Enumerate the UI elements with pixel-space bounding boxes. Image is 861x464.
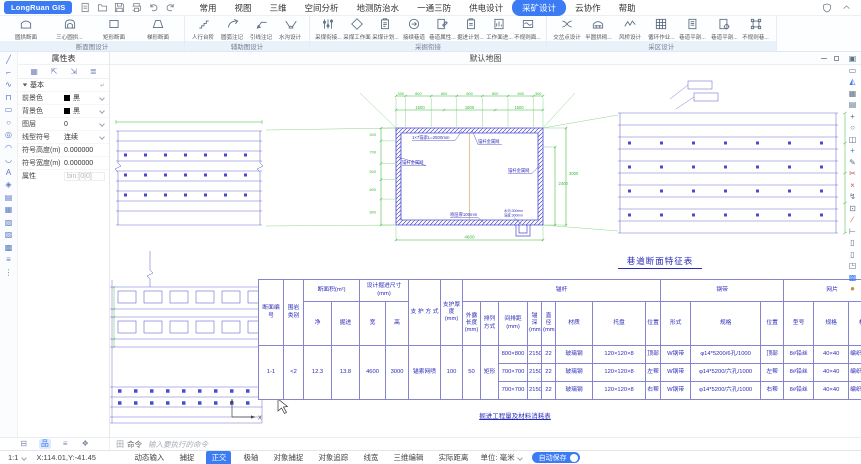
polar-toggle[interactable]: 极轴 [240,451,261,464]
rectangle-tool-icon[interactable]: ▭ [2,104,15,115]
command-label-group: 田 命令 [116,439,142,450]
table-cell: 编织金属网 [849,364,861,382]
chevron-down-icon [517,455,523,461]
multiline-tool-icon[interactable]: ⊓ [2,92,15,103]
xref-tool-icon[interactable]: ▧ [2,217,15,228]
table-row: 1-1 <2 12.3 13.8 4600 3000 锚索网喷 100 50 矩… [259,346,861,364]
roadway-connect-button[interactable]: 接续巷道 [400,17,429,41]
table-cell: 22 [542,346,556,364]
table-cell: 40×40 [814,346,849,364]
svg-text:300: 300 [398,91,405,96]
lineweight-toggle[interactable]: 线宽 [360,451,381,464]
workface-progress-button[interactable]: 工作面进... [485,17,514,41]
menu-item-bangzhu[interactable]: 帮助 [610,0,645,16]
table-cell: 700×700 [499,364,528,382]
dig-plan-button[interactable]: 掘进计划... [457,17,486,41]
clipboard-icon[interactable]: ▯ [850,238,854,249]
chevron-down-icon[interactable] [99,95,105,101]
table-header: 形式 [661,302,691,346]
pencil-icon[interactable]: ✎ [849,158,856,169]
layers-tab-icon[interactable]: ≣ [90,67,97,76]
undo-icon[interactable] [148,2,159,13]
table-header: 锚杆 [463,280,661,302]
svg-text:锚杆金属网: 锚杆金属网 [402,159,423,166]
real-distance-toggle[interactable]: 实际距离 [435,451,471,464]
top-menu-bar: LongRuan GIS 常用 视图 三维 空间分析 地测防治水 一通三防 供电… [0,0,861,16]
view-cube-icon[interactable]: ◳ [849,261,857,272]
table-header: 断面编号 [259,280,284,346]
svg-text:400: 400 [370,132,377,137]
svg-text:3000: 3000 [569,171,579,176]
table-cell: 120×120×8 [593,382,646,400]
menu-item-shitu[interactable]: 视图 [226,0,261,16]
topbar-right [822,3,851,13]
print-icon[interactable] [131,2,142,13]
panel-bottom-tabs: ⊟ 品 ≡ ❖ [0,438,110,450]
svg-text:1500: 1500 [415,105,425,110]
zoom-scale-dropdown[interactable]: 1:1 [8,453,27,462]
rect-section-button[interactable]: 矩形断面 [92,17,136,41]
toggle-knob [570,454,578,462]
svg-text:800: 800 [492,91,499,96]
shield-icon[interactable] [822,3,832,13]
table-cell: 玻璃钢 [556,364,593,382]
table-header: 设计掘进尺寸(mm) [360,280,409,302]
mirror-icon[interactable]: ◭ [849,77,855,88]
prop-row-foreground-color[interactable]: 前景色 黑 [18,91,109,104]
svg-text:锚杆金属网: 锚杆金属网 [508,167,529,174]
prop-row-background-color[interactable]: 背景色 黑 [18,104,109,117]
table-header: 锚深(mm) [528,302,542,346]
roadway-profile2-button[interactable]: 巷道平剖... [709,17,741,41]
table-cell: 12.3 [304,346,332,400]
ribbon-group-panel-design: 交岔点设计 半圆拱砌... 风桥设计 循环作业... 巷道平剖... 巷道平剖.… [547,16,777,51]
table-cell: φ14*5200/6孔/1000 [691,346,761,364]
half-arch-button[interactable]: 半圆拱砌... [583,17,615,41]
irregular-roadway-button[interactable]: 不规则巷... [740,17,772,41]
cut-icon[interactable]: ✂ [849,169,856,180]
table-cell: 13.8 [332,346,360,400]
table-header: 托盘 [593,302,646,346]
svg-text:800: 800 [415,91,422,96]
property-panel: 属性表 ▦ ⇱ ⇲ ≣ 基本 ↵ 前景色 黑 背景色 黑 图层 0 线型符号 连… [18,52,110,437]
app-logo[interactable]: LongRuan GIS [4,1,72,14]
air-bridge-button[interactable]: 风桥设计 [614,17,646,41]
table-cell: 左帮 [646,364,661,382]
copy-icon[interactable]: ▣ [849,54,857,65]
prop-row-layer[interactable]: 图层 0 [18,117,109,130]
prop-row-symbol-height[interactable]: 符号高度(m) 0.000000 [18,143,109,156]
roadway-profile-button[interactable]: 巷道平剖... [677,17,709,41]
minimize-icon[interactable] [821,58,827,59]
property-panel-tabs: ▦ ⇱ ⇲ ≣ [18,65,109,79]
prop-row-linetype[interactable]: 线型符号 连续 [18,130,109,143]
prop-row-symbol-width[interactable]: 符号宽度(m) 0.000000 [18,156,109,169]
coal-connect-button[interactable]: 采煤衔接... [314,17,343,41]
table-cell: 1-1 [259,346,284,400]
ribbon-group-label: 采区设计 [547,41,776,51]
table-header: 外露长度(mm) [463,302,481,346]
table-header: 位置 [646,302,661,346]
table-header: 位置 [761,302,784,346]
open-file-icon[interactable] [97,2,108,13]
ribbon-group-label: 断面图设计 [0,41,184,51]
table-cell: 40×40 [814,364,849,382]
sphere-icon[interactable]: ● [850,284,855,295]
duplicate-icon[interactable]: ◫ [849,135,857,146]
collapse-triangle-icon [22,82,28,88]
edit-toolbar: ▣ ▭ ◭ ▦ ▤ + ○ ◫ + ✎ ✂ × ↯ ⊡ ∕ ⊢ ▯ ▯ ◳ ▩ … [845,54,860,295]
roadway-feature-table: 断面编号 围岩类别 断面积(m²) 设计掘进尺寸(mm) 支 护 方 式 支护厚… [258,279,861,400]
command-icon: 田 [116,439,124,450]
table-cell: 8#铅丝 [784,346,814,364]
coal-plan-button[interactable]: 采煤计划... [371,17,400,41]
menu-item-sanwei[interactable]: 三维 [261,0,296,16]
unit-dropdown[interactable]: 单位: 毫米 [480,452,522,463]
chevron-down-icon[interactable] [99,121,105,127]
table-header: 直径(mm) [542,302,556,346]
irregular-face-button[interactable]: 不规则面... [514,17,543,41]
ribbon-group-label: 辅助图设计 [185,41,309,51]
table-cell: 120×120×8 [593,346,646,364]
status-bar: 1:1 X:114.01,Y:-41.45 动态输入 捕捉 正交 极轴 对象捕捉… [0,450,861,464]
ditch-design-button[interactable]: 水沟设计 [276,17,305,41]
polyline-tool-icon[interactable]: ⌐ [2,67,15,78]
ribbon-group-label: 采掘衔接 [310,41,546,51]
svg-text:锚杆金属网: 锚杆金属网 [478,138,499,145]
svg-text:300: 300 [535,91,542,96]
table-header: 排列方式 [481,302,499,346]
clipboard-paste-icon[interactable]: ▯ [850,250,854,261]
canvas-tab-title[interactable]: 默认地图 [470,53,502,64]
chevron-down-icon[interactable] [99,134,105,140]
arch-section-button[interactable]: 圆拱断面 [4,17,48,41]
circle-center-tool-icon[interactable]: ◎ [2,129,15,140]
ribbon-group-section-design: 圆拱断面 三心圆拱... 矩形断面 梯形断面 断面图设计 [0,16,185,51]
object-snap-toggle[interactable]: 对象捕捉 [270,451,306,464]
table-cell: 右帮 [646,382,661,400]
menu-item-yitongsanfang[interactable]: 一通三防 [408,0,460,16]
more-tools-icon[interactable]: ⋮ [2,267,15,278]
table-cell: 顶部 [761,346,784,364]
quick-access-toolbar [80,2,176,13]
redo-icon[interactable] [165,2,176,13]
delete-icon[interactable]: ▭ [849,66,857,77]
color-swatch [64,108,70,114]
trim-icon[interactable]: ∕ [852,215,853,226]
array-icon[interactable]: ▦ [849,89,857,100]
pick-tab-icon[interactable]: ⇲ [70,67,77,76]
svg-text:800: 800 [518,91,525,96]
table-cell: 编织金属网 [849,346,861,364]
save-icon[interactable] [114,2,125,13]
table-header: 材质 [556,302,593,346]
table-header: 断面积(m²) [304,280,360,302]
table-header: 材质 [849,302,861,346]
table-cell: φ14*5200/六孔/1000 [691,382,761,400]
styles-tab-icon[interactable]: ❖ [80,439,91,449]
svg-text:1×7锚索L=2500mm: 1×7锚索L=2500mm [412,134,450,141]
table-header: 间排距(mm) [499,302,528,346]
maximize-icon[interactable] [834,56,839,61]
3d-edit-toggle[interactable]: 三维编辑 [390,451,426,464]
list-tab-icon[interactable]: ⊟ [18,439,29,449]
table-cell: W钢带 [661,346,691,364]
table-header: 规格 [814,302,849,346]
svg-text:4600: 4600 [464,235,475,240]
table-cell: <2 [284,346,304,400]
feature-table-caption: 掘进工程量及材料消耗表 [455,410,575,420]
junction-design-button[interactable]: 交岔点设计 [551,17,583,41]
pin-icon[interactable]: ↵ [100,82,105,89]
svg-text:深度:300mm: 深度:300mm [504,213,523,218]
three-center-arch-button[interactable]: 三心圆拱... [48,17,92,41]
table-cell: 3000 [386,346,409,400]
table-cell: 编织金属网 [849,382,861,400]
stretch-icon[interactable]: ↯ [849,192,856,203]
ribbon-group-aux-design: 人行台阶 圆弧注记 引线注记 水沟设计 辅助图设计 [185,16,310,51]
table-header: 支 护 方 式 [409,280,441,346]
support-layout-plan [110,251,262,423]
ellipse-tool-icon[interactable]: ◡ [2,154,15,165]
marquee-icon[interactable]: ⊡ [849,204,856,215]
property-panel-title: 属性表 [18,52,109,65]
align-tool-icon[interactable]: ≡ [2,254,15,265]
snap-toggle[interactable]: 捕捉 [176,451,197,464]
svg-text:800: 800 [466,91,473,96]
table-cell: 22 [542,364,556,382]
leader-annotation-button[interactable]: 引线注记 [247,17,276,41]
arc-tool-icon[interactable]: ◠ [2,142,15,153]
table-header: 围岩类别 [284,280,304,346]
table-cell: 玻璃钢 [556,382,593,400]
hatch-tool-icon[interactable]: ◈ [2,179,15,190]
feature-table-title: 巷道断面特征表 [618,255,702,269]
svg-text:600: 600 [370,187,377,192]
table-cell: 玻璃钢 [556,346,593,364]
menu-item-kongjianfenxi[interactable]: 空间分析 [296,0,348,16]
walk-steps-button[interactable]: 人行台阶 [189,17,218,41]
dynamic-input-toggle[interactable]: 动态输入 [131,451,167,464]
draw-toolbar: ╱ ⌐ ∿ ⊓ ▭ ○ ◎ ◠ ◡ A ◈ ▤ ▦ ▧ ▨ ▩ ≡ ⋮ [0,52,18,437]
table-cell: 右帮 [761,382,784,400]
projection-lines [266,93,618,231]
table-cell: 22 [542,382,556,400]
plan-view-left [115,120,263,225]
chevron-down-icon[interactable] [99,108,105,114]
svg-text:水沟:300mm: 水沟:300mm [504,208,523,213]
table-cell: 锚索网喷 [409,346,441,400]
move-icon[interactable]: + [850,112,855,123]
table-cell: 700×700 [499,382,528,400]
table-header: 型号 [784,302,814,346]
pattern-icon[interactable]: ▩ [849,273,857,284]
section-basic[interactable]: 基本 ↵ [18,79,109,91]
print-area-icon[interactable]: ▤ [849,100,857,111]
svg-text:500: 500 [370,169,377,174]
autosave-toggle[interactable]: 自动保存 [532,452,580,463]
layer-list-tab-icon[interactable]: ≡ [61,439,70,449]
text-tool-icon[interactable]: A [2,167,15,178]
table-header: 净 [304,302,332,346]
table-cell: 50 [463,346,481,400]
svg-text:800: 800 [441,91,448,96]
svg-text:1600: 1600 [465,105,475,110]
canvas-tab-bar: 默认地图 [110,52,861,65]
table-cell: φ14*5200/六孔/1000 [691,364,761,382]
svg-text:X: X [258,416,262,422]
table-cell: 4600 [360,346,386,400]
table-cell: 2150 [528,382,542,400]
new-file-icon[interactable] [80,2,91,13]
table-cell: 2150 [528,346,542,364]
menu-item-gongdiansheji[interactable]: 供电设计 [460,0,512,16]
map-canvas[interactable]: 默认地图 ▣ ▭ ◭ ▦ ▤ + ○ ◫ + ✎ ✂ × ↯ ⊡ ∕ ⊢ ▯ ▯… [110,52,861,437]
collapse-ribbon-icon[interactable] [842,3,851,12]
table-cell: W钢带 [661,382,691,400]
chevron-down-icon [22,455,28,461]
leader-box [694,93,718,101]
block-tool-icon[interactable]: ▦ [2,204,15,215]
svg-text:800: 800 [370,210,377,215]
menu-item-caikuangsheji[interactable]: 采矿设计 [512,0,566,16]
table-cell: 40×40 [814,382,849,400]
table-header: 支护厚度(mm) [441,280,463,346]
table-header: 掘进 [332,302,360,346]
add-icon[interactable]: + [850,146,855,157]
region-tool-icon[interactable]: ▨ [2,229,15,240]
menu-item-yunxiezuo[interactable]: 云协作 [566,0,610,16]
map-tool-icon[interactable]: ▩ [2,242,15,253]
ribbon-group-mining-connection: 采煤衔接... 采煤工作面 采煤计划... 接续巷道 巷道属性... 掘进计划.… [310,16,547,51]
prop-row-attribute[interactable]: 属性 bin:[0|0] [18,169,109,182]
properties-tab-icon[interactable]: ▦ [30,67,38,76]
table-cell: W钢带 [661,364,691,382]
extend-icon[interactable]: ⊢ [849,227,856,238]
cursor-arrow [278,399,288,414]
cursor-coordinates: X:114.01,Y:-41.45 [36,453,122,462]
table-header: 钢带 [661,280,784,302]
image-tool-icon[interactable]: ▤ [2,192,15,203]
table-cell: 800×800 [499,346,528,364]
table-cell: 8#铅丝 [784,364,814,382]
object-track-toggle[interactable]: 对象追踪 [315,451,351,464]
command-input[interactable] [148,440,861,449]
cycle-work-button[interactable]: 循环作业... [646,17,678,41]
arc-annotation-button[interactable]: 圆弧注记 [218,17,247,41]
spline-tool-icon[interactable]: ∿ [2,79,15,90]
table-cell: 100 [441,346,463,400]
table-cell: 左帮 [761,364,784,382]
svg-text:700: 700 [370,150,377,155]
svg-text:喷层厚100mm: 喷层厚100mm [450,211,478,218]
table-header: 宽 [360,302,386,346]
line-tool-icon[interactable]: ╱ [2,54,15,65]
water-ditch [516,225,530,236]
color-swatch [64,95,70,101]
plan-view-right [618,81,847,234]
circle-tool-icon[interactable]: ○ [2,117,15,128]
trapezoid-section-button[interactable]: 梯形断面 [136,17,180,41]
ortho-toggle[interactable]: 正交 [206,451,231,464]
table-header: 高 [386,302,409,346]
table-cell: 120×120×8 [593,364,646,382]
structure-tab-icon[interactable]: 品 [39,439,51,449]
leader-labels: 1×7锚索L=2500mm 锚杆金属网 锚杆金属网 锚杆金属网 喷层厚100mm… [398,130,540,224]
svg-text:2400: 2400 [559,181,569,186]
select-tab-icon[interactable]: ⇱ [51,67,58,76]
table-cell: 顶部 [646,346,661,364]
table-header: 规格 [691,302,761,346]
coal-workface-button[interactable]: 采煤工作面 [343,17,372,41]
leader-box [688,81,712,89]
rotate-icon[interactable]: ○ [850,123,855,134]
tunnel-cross-section [396,128,543,236]
roadway-props-button[interactable]: 巷道属性... [428,17,457,41]
menu-item-dicefangzhishui[interactable]: 地测防治水 [348,0,409,16]
ribbon: 圆拱断面 三心圆拱... 矩形断面 梯形断面 断面图设计 人行台阶 圆弧注记 引… [0,16,861,52]
menu-item-changyong[interactable]: 常用 [190,0,225,16]
table-cell: 矩形 [481,346,499,400]
table-cell: 8#铅丝 [784,382,814,400]
command-label: 命令 [127,439,142,450]
svg-text:1500: 1500 [514,105,524,110]
table-cell: 2150 [528,364,542,382]
main-menu: 常用 视图 三维 空间分析 地测防治水 一通三防 供电设计 采矿设计 云协作 帮… [190,0,644,16]
break-icon[interactable]: × [850,181,855,192]
command-row: ⊟ 品 ≡ ❖ 田 命令 [0,437,861,450]
